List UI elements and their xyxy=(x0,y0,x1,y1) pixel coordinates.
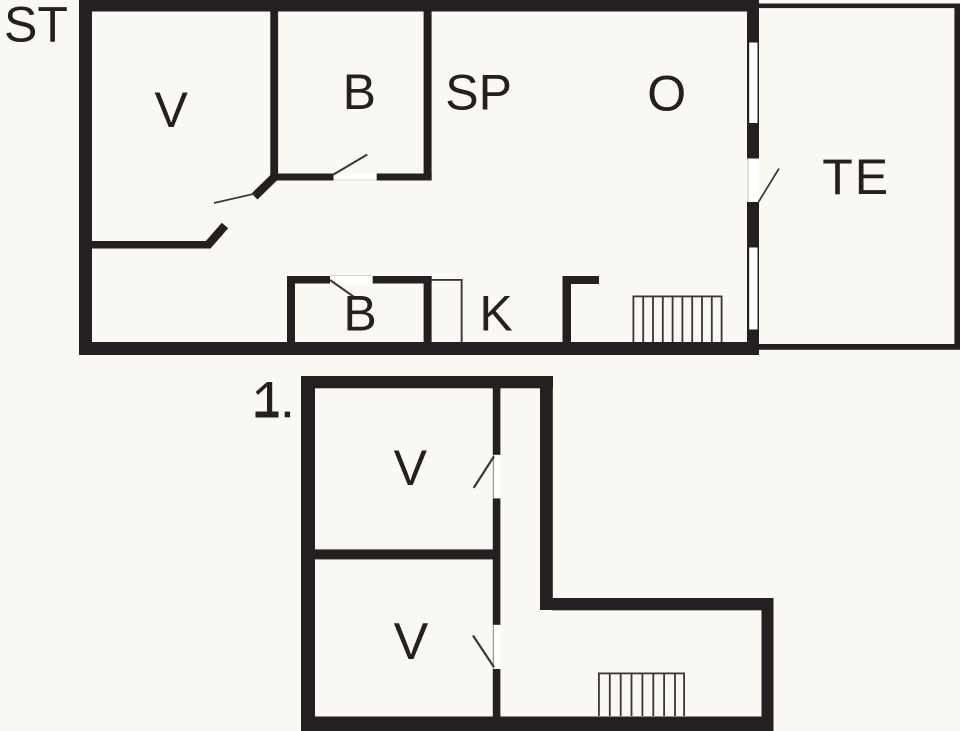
svg-text:SP: SP xyxy=(445,65,512,121)
svg-text:B: B xyxy=(343,285,376,341)
svg-text:ST: ST xyxy=(4,0,68,53)
svg-text:K: K xyxy=(479,285,512,341)
svg-text:V: V xyxy=(394,440,428,496)
svg-text:V: V xyxy=(394,613,429,671)
svg-text:B: B xyxy=(343,64,376,120)
svg-text:V: V xyxy=(155,82,189,138)
svg-text:TE: TE xyxy=(822,149,890,205)
svg-text:O: O xyxy=(647,65,686,121)
